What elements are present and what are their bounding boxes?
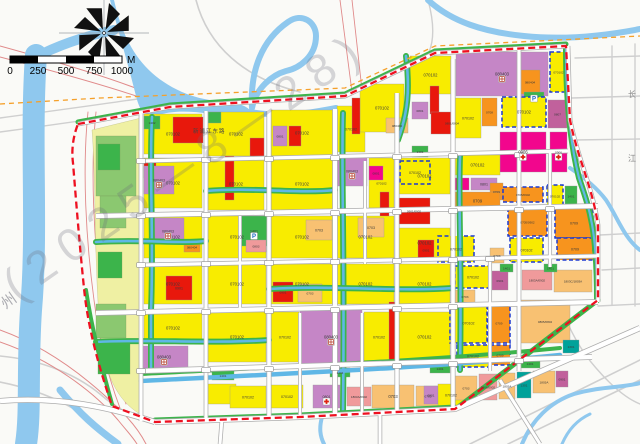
road-section-marker: [265, 261, 274, 266]
parcel-code-label: 0709: [570, 221, 578, 225]
parcel-code-label: 070102: [166, 180, 181, 185]
parcel-code-label: 0901: [280, 290, 287, 294]
parcel-code-label: 0709: [497, 353, 504, 357]
parcel-code-label: 070102: [517, 109, 532, 114]
parcel-code-label: 0703: [463, 386, 470, 390]
parcel-code-label: 0801: [417, 109, 424, 113]
parcel-code-label: 1401: [417, 150, 424, 154]
map-stage: 0701021402070102070102080107010207010208…: [0, 0, 640, 444]
parcel-code-label: 1803A: [503, 384, 513, 388]
parcel-code-label: 0901: [559, 377, 566, 381]
parcel-code-label: 1401: [527, 362, 534, 366]
map-parcel: [250, 138, 264, 156]
parcel-code-label: 1301: [521, 383, 528, 387]
road-section-marker: [449, 154, 458, 159]
parcel-code-label: 0801: [480, 182, 488, 186]
road-section-marker: [449, 258, 458, 263]
parcel-code-label: 0708: [486, 110, 493, 114]
parcel-code-label: 070102: [471, 162, 486, 167]
road-section-marker: [515, 359, 524, 364]
map-parcel: [208, 112, 221, 123]
parcel-code-label: 0901: [423, 248, 430, 252]
road-section-marker: [265, 367, 274, 372]
scale-tick-label: 250: [30, 66, 47, 77]
parcel-code-label: 0709: [496, 321, 503, 325]
road-section-marker: [265, 212, 274, 217]
parcel-code-label: 1803A/0902: [351, 395, 368, 399]
road-section-marker: [202, 310, 211, 315]
road-section-marker: [331, 211, 340, 216]
parcel-code-label: 0901: [175, 286, 183, 290]
road-section-marker: [393, 155, 402, 160]
scale-tick-label: 0: [7, 66, 13, 77]
parcel-code-label: 0703: [367, 226, 375, 230]
map-parcel: [225, 156, 234, 200]
parcel-code-label: 0801: [373, 171, 380, 175]
road-section-marker: [393, 259, 402, 264]
map-canvas[interactable]: 0701021402070102070102080107010207010208…: [0, 0, 640, 444]
parcel-code-label: 1402: [149, 121, 156, 125]
parcel-code-label: 070102: [345, 127, 357, 131]
road-section-marker: [393, 364, 402, 369]
parcel-code-label: 0703: [315, 228, 323, 232]
svg-text:P: P: [532, 97, 536, 103]
road-section-marker: [331, 366, 340, 371]
parcel-code-label: 1301: [568, 345, 575, 349]
parcel-code-label: 1803A/0902: [529, 278, 546, 282]
road-section-marker: [137, 369, 146, 374]
parcel-code-label: 1401: [437, 367, 444, 371]
scale-tick-label: 500: [58, 66, 75, 77]
parcel-code-label: 0801: [277, 134, 284, 138]
parcel-code-label: 0806/0902: [481, 385, 496, 389]
parcel-code-label: 0807: [554, 112, 561, 116]
road-section-marker: [265, 309, 274, 314]
edge-place-label: 江: [628, 154, 636, 163]
road-section-marker: [137, 311, 146, 316]
parcel-code-label: 1803C/1803A: [564, 279, 582, 283]
parcel-code-label: 0803: [253, 244, 260, 248]
parcel-code-label: 0703: [307, 291, 314, 295]
parcel-code-label: 070102: [295, 130, 310, 135]
parcel-code-label: 070102: [409, 171, 421, 175]
parcel-code-label: 1803A: [540, 380, 550, 384]
parcel-code-label: 0709: [571, 247, 579, 251]
parcel-code-label: 070102: [230, 334, 245, 339]
road-section-marker: [449, 209, 458, 214]
parcel-code-label: 070102: [467, 354, 479, 358]
road-section-marker: [137, 214, 146, 219]
parcel-code-label: 0705/0902: [516, 193, 531, 197]
parcel-code-label: 0801: [428, 393, 435, 397]
parcel-code-label: 080404: [525, 80, 536, 84]
parcel-code-label: 1401: [220, 374, 227, 378]
parcel-code-label: 070102: [418, 281, 433, 286]
parcel-code-label: 070102: [553, 70, 564, 74]
parcel-code-label: 070102: [467, 275, 479, 279]
parcel-code-label: 0801/0804: [445, 121, 460, 125]
parcel-code-label: 070102: [359, 234, 374, 239]
road-section-marker: [202, 213, 211, 218]
parcel-code-label: 1401: [547, 266, 554, 270]
road-section-marker: [137, 263, 146, 268]
road-section-marker: [202, 368, 211, 373]
parcel-code-label: 0709: [493, 190, 500, 194]
parcel-code-label: 070102: [230, 234, 245, 239]
parcel-code-label: 070102: [295, 181, 310, 186]
parcel-code-label: 070102: [418, 334, 433, 339]
road-section-marker: [331, 308, 340, 313]
road-section-marker: [265, 157, 274, 162]
parcel-code-label: 070102: [521, 248, 533, 252]
scale-unit-label: M: [127, 55, 135, 66]
road-section-marker: [449, 362, 458, 367]
parcel-code-label: 070102: [376, 181, 387, 185]
parcel-code-label: 070102: [463, 321, 475, 325]
parcel-code-label: 070102: [166, 325, 181, 330]
parcel-code-label: 070102: [230, 281, 245, 286]
parcel-code-label: 070102: [450, 247, 462, 251]
parcel-code-label: 1401: [337, 371, 344, 375]
parcel-code-label: 0709: [473, 198, 483, 203]
parcel-code-label: 080404: [187, 245, 198, 249]
parcel-code-label: 070102: [375, 105, 390, 110]
parcel-code-label: 070102: [550, 194, 561, 198]
parcel-code-label: 0705/0902: [520, 220, 535, 224]
parcel-code-label: 070102: [242, 395, 254, 399]
parcel-code-label: 070102: [229, 181, 244, 186]
scale-tick-label: 1000: [111, 66, 134, 77]
map-parcel: [289, 126, 301, 146]
parcel-code-label: 070102: [418, 240, 433, 245]
road-section-marker: [546, 207, 555, 212]
edge-place-label: 长: [628, 89, 636, 99]
parcel-code-label: 070102: [229, 131, 244, 136]
road-section-marker: [202, 262, 211, 267]
parcel-code-label: 070102: [295, 234, 310, 239]
parcel-code-label: 0703: [388, 394, 398, 399]
parcel-code-label: 0805/0804: [538, 320, 553, 324]
parcel-code-label: 070102: [445, 393, 457, 397]
parcel-code-label: 0703: [462, 295, 469, 299]
parcel-code-label: 1401: [568, 194, 575, 198]
parcel-code-label: 070102: [279, 335, 291, 339]
parcel-code-label: 070102: [359, 281, 374, 286]
road-section-marker: [331, 260, 340, 265]
parcel-code-label: 070102: [295, 281, 310, 286]
road-section-marker: [515, 208, 524, 213]
parcel-code-label: 1401: [503, 266, 510, 270]
parcel-code-label: 070102: [424, 72, 439, 77]
parcel-code-label: 070102: [281, 395, 293, 399]
road-section-marker: [202, 158, 211, 163]
parcel-code-label: 070102: [166, 131, 181, 136]
svg-text:P: P: [252, 234, 256, 240]
map-parcel: [430, 86, 439, 114]
parcel-code-label: 0703: [494, 254, 501, 258]
road-section-marker: [393, 307, 402, 312]
scale-tick-label: 750: [86, 66, 103, 77]
village-strip: [92, 118, 141, 414]
parcel-code-label: 0901/0902: [407, 209, 422, 213]
road-section-marker: [393, 210, 402, 215]
parcel-code-label: 0901: [497, 279, 504, 283]
road-name-label: 新浦江东路: [193, 127, 226, 135]
parcel-code-label: 080404: [392, 124, 403, 128]
road-section-marker: [331, 156, 340, 161]
road-section-marker: [449, 305, 458, 310]
road-section-marker: [137, 159, 146, 164]
parcel-code-label: 070102: [373, 335, 385, 339]
parcel-code-label: 070102: [462, 116, 474, 120]
